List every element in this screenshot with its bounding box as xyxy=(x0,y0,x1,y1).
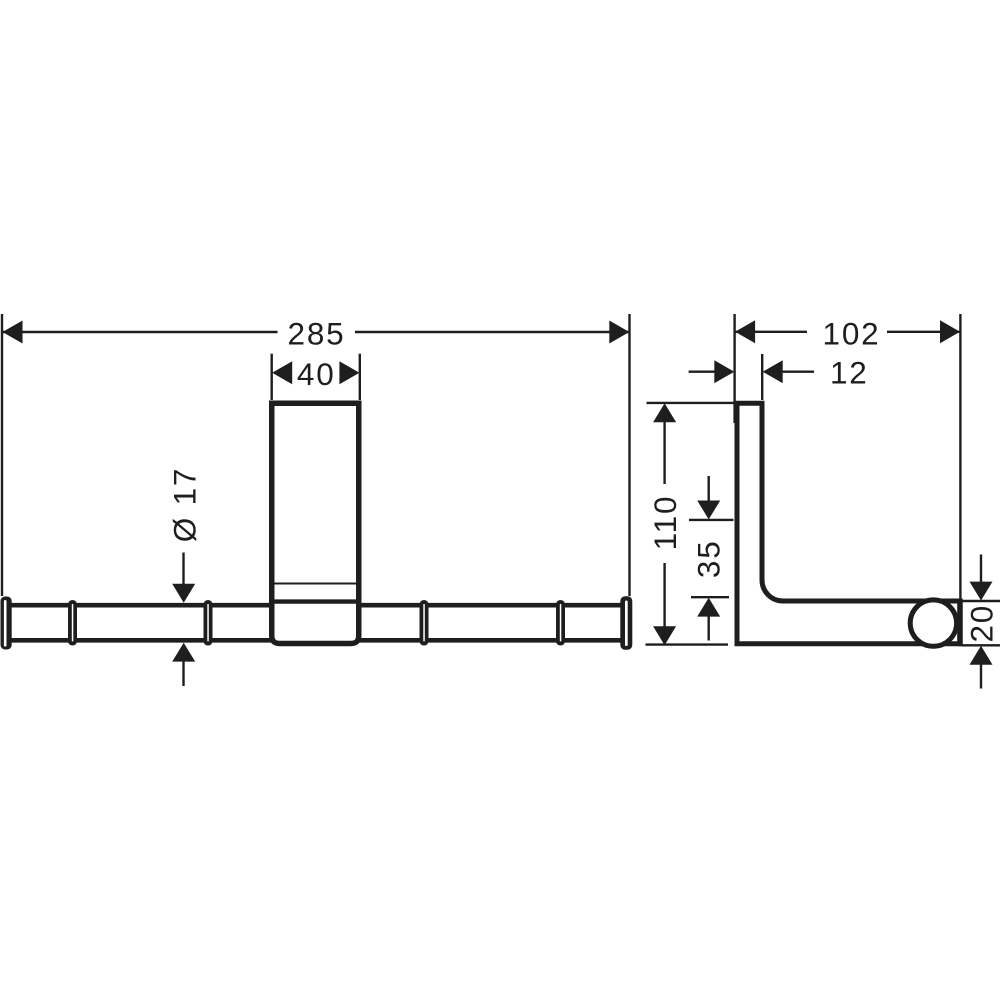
svg-text:110: 110 xyxy=(647,495,683,551)
svg-text:12: 12 xyxy=(830,355,869,391)
svg-text:285: 285 xyxy=(288,316,346,352)
svg-text:102: 102 xyxy=(823,316,881,352)
svg-text:35: 35 xyxy=(690,539,726,578)
svg-text:Ø 17: Ø 17 xyxy=(167,467,203,543)
svg-text:20: 20 xyxy=(964,604,1000,643)
svg-text:40: 40 xyxy=(297,356,336,392)
